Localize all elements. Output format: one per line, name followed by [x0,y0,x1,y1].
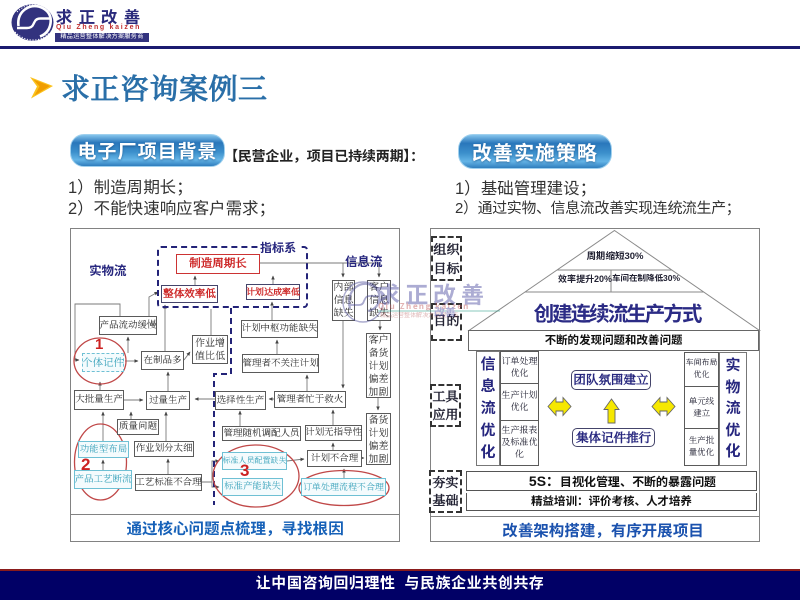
svg-text:改善: 改善 [434,304,456,320]
